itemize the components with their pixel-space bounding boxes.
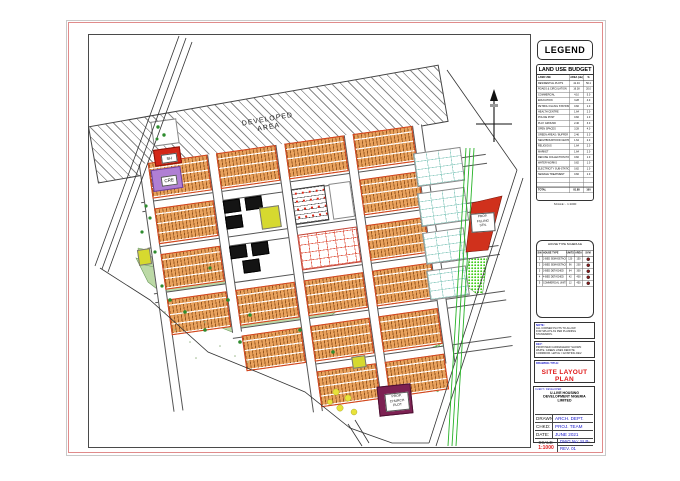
budget-cell-pct: 1.0 <box>584 104 593 109</box>
budget-cell-pct: 2.0 <box>584 149 593 154</box>
schedule-row: 5COMMERCIAL UNITS12450 <box>537 281 593 287</box>
field-value: ARCH. DEPT. <box>553 415 593 422</box>
field-value: JUNE 2021 <box>553 431 593 438</box>
budget-cell-landuse: REFUSE COLLECTION POINT <box>537 155 570 160</box>
title-block-field-row: CHKD:PROJ. TEAM <box>535 422 593 430</box>
road-line <box>95 36 179 266</box>
budget-cell-landuse: POLICE POST <box>537 115 570 120</box>
field-label: DRAWN: <box>535 415 553 422</box>
budget-total-pct: 100 <box>584 187 593 192</box>
budget-cell-area: 3.28 <box>570 127 585 132</box>
schedule-symbol-cell <box>583 275 593 281</box>
budget-cell-area: 1.64 <box>570 149 585 154</box>
house-type-symbol-icon <box>586 276 590 280</box>
budget-cell-pct: 3.0 <box>584 132 593 137</box>
company-name: U-LIVE HOUSINGDEVELOPMENT NIGERIALIMITED <box>535 391 593 403</box>
schedule-symbol-cell <box>583 263 593 269</box>
dwg-number: DWG No: SLP-01 <box>558 439 593 446</box>
ground-dots <box>164 311 249 363</box>
budget-cell-area: 16.38 <box>570 87 585 92</box>
title-block: CLIENT / DEVELOPER: U-LIVE HOUSINGDEVELO… <box>533 386 595 443</box>
title-block-fields: DRAWN:ARCH. DEPT.CHKD:PROJ. TEAMDATE:JUN… <box>535 414 593 438</box>
note-line: CORRIDOR. HATCH = EXISTING DEV. <box>536 352 593 355</box>
house-type-symbol-icon <box>586 258 590 262</box>
budget-cell-landuse: ELECTRICITY SUB-STATION <box>537 166 570 171</box>
budget-header-cell: AREA (Ha) <box>570 75 585 81</box>
note-lines: PROPOSED CARRIAGEWAY SHOWNWHITE. GREEN L… <box>536 346 593 355</box>
company-line: LIMITED <box>535 399 593 403</box>
notes-box-2: KEY: PROPOSED CARRIAGEWAY SHOWNWHITE. GR… <box>534 341 595 358</box>
schedule-header-cell: HOUSE TYPE <box>543 251 567 257</box>
schedule-symbol-cell <box>583 281 593 287</box>
budget-cell-pct: 1.0 <box>584 161 593 166</box>
schedule-header-cell: SYM <box>583 251 593 257</box>
budget-cell-area: 1.64 <box>570 144 585 149</box>
budget-cell-area: 1.64 <box>570 109 585 114</box>
budget-header-cell: % <box>584 75 593 81</box>
red-parcel-label-line: STN. <box>472 222 494 228</box>
budget-cell-pct: 1.0 <box>584 155 593 160</box>
budget-cell-pct: 3.0 <box>584 121 593 126</box>
title-block-field-row: DATE:JUNE 2021 <box>535 430 593 438</box>
budget-cell-landuse: HEALTH CENTRE <box>537 109 570 114</box>
schedule-symbol-cell <box>583 269 593 275</box>
legend-title-box: LEGEND <box>537 40 593 60</box>
budget-cell-area: 0.82 <box>570 155 585 160</box>
north-arrow-icon <box>476 89 512 142</box>
field-label: CHKD: <box>535 423 553 430</box>
scale-note: SCALE :- 1:1000 <box>551 203 579 206</box>
title-block-label: CLIENT / DEVELOPER: <box>535 388 564 390</box>
budget-cell-area: 3.28 <box>570 98 585 103</box>
boundary-line <box>100 268 429 443</box>
budget-cell-landuse: EDUCATION <box>537 98 570 103</box>
budget-cell-area: 41.04 <box>570 81 585 86</box>
budget-cell-landuse: ROADS & CIRCULATION <box>537 87 570 92</box>
scale-cell: SCALE: 1:1000 <box>535 439 558 452</box>
budget-cell-area: 0.82 <box>570 115 585 120</box>
budget-cell-pct: 4.0 <box>584 98 593 103</box>
budget-blank-row <box>537 182 593 187</box>
drawing-title-box: DRAWING TITLE: SITE LAYOUT PLAN <box>534 360 595 383</box>
note-lines: ALL CORNER PLOTS TO ALLOWFOR SPLAYS AS P… <box>536 327 593 336</box>
budget-header-cell: LAND USE <box>537 75 570 81</box>
house-schedule-title: HOUSE TYPE SCHEDULE <box>537 243 593 246</box>
budget-cell-pct: 2.0 <box>584 138 593 143</box>
budget-cell-area: 0.82 <box>570 172 585 177</box>
budget-cell-landuse: NEIGHBOURHOOD CENTRE <box>537 138 570 143</box>
budget-cell-landuse: SEWAGE TREATMENT <box>537 172 570 177</box>
house-schedule-box: HOUSE TYPE SCHEDULE S/NHOUSE TYPEUNITSAR… <box>536 240 594 318</box>
budget-cell-area: 1.64 <box>570 138 585 143</box>
budget-cell-area: 0.82 <box>570 161 585 166</box>
budget-cell-landuse: RESIDENTIAL PLOTS <box>537 81 570 86</box>
road-line <box>108 42 192 272</box>
dwg-revision: REV. 01 <box>558 446 593 452</box>
yellow-tree-icons <box>327 389 357 415</box>
field-label: DATE: <box>535 431 553 438</box>
budget-cell-pct: 4.0 <box>584 127 593 132</box>
house-type-symbol-icon <box>586 264 590 268</box>
budget-cell-landuse: OPEN SPACES <box>537 127 570 132</box>
yellow-block <box>137 248 152 266</box>
budget-cell-area: 0.82 <box>570 166 585 171</box>
title-block-bottom: SCALE: 1:1000 DWG No: SLP-01 REV. 01 <box>535 438 593 452</box>
budget-cell-area: 0.82 <box>570 104 585 109</box>
road-line <box>355 420 369 443</box>
field-value: PROJ. TEAM <box>553 423 593 430</box>
green-corridor-line <box>452 148 470 446</box>
red-parcel-label: PROP.FILLINGSTN. <box>470 212 495 233</box>
note-heading: KEY: <box>536 343 565 345</box>
budget-total-row: TOTAL81.88100 <box>537 187 593 193</box>
budget-total-area: 81.88 <box>570 187 585 192</box>
road-line <box>102 38 186 269</box>
budget-cell-pct: 1.0 <box>584 172 593 177</box>
budget-cell-pct: 2.0 <box>584 144 593 149</box>
budget-cell-area: 4.10 <box>570 92 585 97</box>
budget-cell-pct: 1.0 <box>584 115 593 120</box>
house-type-symbol-icon <box>586 270 590 274</box>
budget-rows: LAND USEAREA (Ha)%RESIDENTIAL PLOTS41.04… <box>537 75 593 193</box>
budget-cell-area: 2.46 <box>570 132 585 137</box>
notes-box-1: NOTE: ALL CORNER PLOTS TO ALLOWFOR SPLAY… <box>534 322 595 339</box>
budget-cell-pct: 2.0 <box>584 109 593 114</box>
budget-cell-landuse: PETROL FILLING STATION <box>537 104 570 109</box>
budget-cell-landuse: RELIGIOUS <box>537 144 570 149</box>
budget-total-label: TOTAL <box>537 187 570 192</box>
boundary-line <box>447 70 517 170</box>
land-use-budget-table: LAND USE BUDGET LAND USEAREA (Ha)%RESIDE… <box>536 64 594 201</box>
schedule-symbol-cell <box>583 257 593 263</box>
budget-cell-landuse: PLAY GROUND <box>537 121 570 126</box>
legend-title: LEGEND <box>545 45 586 55</box>
scale-value: 1:1000 <box>538 445 554 451</box>
note-line: STANDARDS. <box>536 333 593 336</box>
green-corridor-line <box>456 148 474 446</box>
budget-cell-landuse: MARKET <box>537 149 570 154</box>
house-type-symbol-icon <box>586 282 590 286</box>
house-schedule-rows: S/NHOUSE TYPEUNITSAREASYM12-BED SEMI-DET… <box>537 250 593 287</box>
budget-title: LAND USE BUDGET <box>537 65 593 75</box>
budget-cell-area: 2.46 <box>570 121 585 126</box>
drawing-title-label: DRAWING TITLE: <box>536 362 565 364</box>
budget-cell-landuse: WATER WORKS <box>537 161 570 166</box>
budget-cell-pct: 50.1 <box>584 81 593 86</box>
drawing-title: SITE LAYOUT PLAN <box>536 369 593 383</box>
schedule-header-cell: AREA <box>575 251 584 257</box>
budget-cell-pct: 20.0 <box>584 87 593 92</box>
yellow-block <box>351 355 367 369</box>
tree-icons <box>140 125 334 354</box>
title-block-field-row: DRAWN:ARCH. DEPT. <box>535 414 593 422</box>
budget-cell-landuse: GREEN AREAS / BUFFER <box>537 132 570 137</box>
green-corridor-line <box>448 148 466 446</box>
schedule-header-cell: UNITS <box>567 251 575 257</box>
budget-cell-pct: 5.0 <box>584 92 593 97</box>
note-heading: NOTE: <box>536 324 565 326</box>
budget-cell-pct: 1.0 <box>584 166 593 171</box>
budget-cell-landuse: COMMERCIAL <box>537 92 570 97</box>
